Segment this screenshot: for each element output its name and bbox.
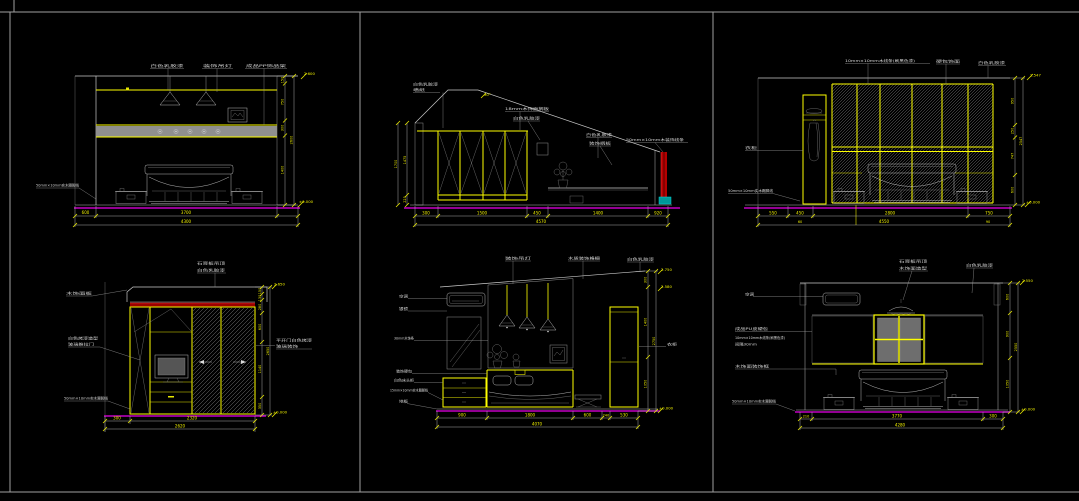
dim-text: 300 (281, 125, 285, 131)
level-mark: 2.550 (1022, 278, 1033, 283)
material-label: 10mm×10mm木线条(刷黑色漆) (845, 58, 915, 63)
dim-text: 4300 (181, 219, 192, 224)
material-label: 装饰吊灯 (505, 256, 532, 261)
material-label: 空调 (745, 292, 755, 297)
sloped-ceiling (440, 271, 645, 287)
material-label: 15mm×10mm实木踢脚线 (390, 388, 429, 393)
level-mark: 2.650 (274, 282, 285, 287)
dimension-right: 950 250 747 600 2547 2.547 ±0.000 (1010, 73, 1041, 208)
dimension-right: 300 1400 1050 2750 2.750 2.580 ±0.000 (638, 267, 674, 413)
material-label: 玻璃推拉门 (68, 342, 94, 347)
dim-text: 530 (620, 413, 628, 418)
material-label: 50mm×10mm实木踢脚线 (64, 396, 109, 401)
nightstand (231, 189, 263, 204)
dimension-left: 1475 225 1700 (394, 121, 409, 207)
elevation-panel-2: 1475 225 1700 300 1500 450 1400 920 4570… (394, 82, 688, 228)
material-label: 50mm×10mm实木踢脚线 (732, 399, 777, 404)
dim-text: 750 (281, 99, 285, 105)
dimension-bottom: 300 1500 450 1400 920 4570 (413, 206, 670, 227)
material-label: 石膏板吊顶 (197, 261, 226, 266)
level-mark: ±0.000 (273, 410, 288, 415)
bed (859, 370, 947, 409)
material-label: 衣柜 (667, 342, 678, 347)
dim-text: 250 (1011, 128, 1015, 134)
closet (803, 95, 826, 204)
level-mark: 2.547 (1030, 73, 1041, 78)
material-label: 白色乳胶漆 (978, 60, 1006, 65)
dim-text: 300 (644, 277, 648, 283)
level-mark: ±0.000 (299, 199, 314, 204)
dim-text: 4070 (532, 422, 543, 427)
dimension-right: 150 750 300 1400 2600 2.600 ±0.000 (277, 71, 315, 207)
material-label: 白色乳胶漆 (151, 63, 185, 68)
material-label: 硬包饰面 (936, 59, 961, 64)
dim-text: 2320 (187, 416, 198, 421)
red-band (130, 303, 255, 307)
dim-text: 1475 (403, 156, 407, 165)
callouts: 石膏板吊顶 木饰面造型 白色乳胶漆 空调 成品PU皮硬包 10mm×10mm木线… (732, 259, 994, 412)
elevation-panel-4: 300 2320 2620 150 130 280 600 1140 350 2… (64, 261, 313, 433)
bed-platform (487, 370, 573, 407)
dim-text: 350 (258, 403, 262, 409)
material-label: 白色乳胶漆 (966, 263, 994, 268)
yellow-marker (126, 88, 129, 91)
material-label: 衣柜 (745, 145, 758, 150)
wardrobe (438, 131, 527, 200)
dimension-right: 600 900 1050 2550 2.550 ±0.000 (1003, 278, 1036, 414)
dim-text: 1500 (477, 211, 488, 216)
dimension-bottom: 900 1800 600 240 530 4070 (435, 411, 640, 429)
dim-text: 600 (584, 413, 592, 418)
elevation-panel-3: 550 450 2800 750 60 4550 90 950 250 747 … (728, 58, 1041, 227)
dim-text: 2800 (885, 211, 896, 216)
material-label: 白色乳胶漆 (586, 132, 613, 137)
ceiling-lamp-icon (887, 299, 915, 314)
dim-text: 1400 (593, 211, 604, 216)
material-label: 白色乳胶漆 (197, 268, 226, 273)
dim-text: 210 (803, 415, 809, 419)
dim-text: 900 (458, 413, 466, 418)
teal-base-block (659, 197, 671, 204)
air-conditioner (823, 293, 860, 305)
dim-text: 600 (1006, 294, 1010, 300)
picture-frame (550, 345, 567, 363)
dim-text: 600 (82, 210, 90, 215)
dim-text: 4280 (895, 423, 906, 428)
dim-text: 2620 (175, 424, 186, 429)
material-label: 30mm木饰条 (394, 336, 415, 341)
material-label: 空调 (399, 294, 409, 299)
dim-text: 1400 (281, 166, 285, 175)
dim-text: 600 (1011, 187, 1015, 193)
dim-text: 300 (989, 414, 997, 419)
dim-text: 2550 (1014, 343, 1018, 352)
material-label: 玻璃装饰 (276, 344, 299, 349)
dim-text: 2600 (290, 136, 294, 145)
material-label: 银镜 (399, 306, 409, 311)
shelf-band (96, 126, 277, 137)
dim-text: 3700 (181, 210, 192, 215)
stool (575, 395, 601, 407)
hatched-pier (994, 284, 1000, 305)
dim-text: 150 (258, 288, 262, 294)
dim-text: 750 (985, 211, 993, 216)
material-label: 白色床头柜 (394, 378, 415, 383)
plants (487, 345, 520, 369)
dim-text: 60 (798, 220, 802, 224)
material-label: 装饰搁板 (589, 141, 612, 146)
dim-text: 300 (422, 211, 430, 216)
dim-text: 3770 (892, 414, 903, 419)
sliding-door (193, 308, 220, 413)
material-label: 石膏板吊顶 (899, 259, 928, 264)
dim-text: 1140 (258, 365, 262, 374)
pendant-lamp-icon (499, 283, 556, 332)
material-label: 白色乳胶漆 (627, 257, 655, 262)
nightstand (823, 395, 855, 410)
level-mark: ±0.000 (1021, 407, 1036, 412)
dim-text: 4570 (536, 219, 547, 224)
material-label: 间隔30mm (735, 342, 757, 347)
dim-text: 950 (1011, 98, 1015, 104)
dimension-bottom: 600 3700 4300 (73, 206, 300, 227)
material-label: 50mm×10mm实木踢脚线 (728, 188, 774, 193)
material-label: 地板 (399, 399, 409, 404)
dimension-bottom: 550 450 2800 750 60 4550 90 (756, 206, 1012, 227)
hatched-pier (415, 123, 423, 205)
material-label: 白色烤漆造型 (68, 336, 99, 341)
dim-text: 2750 (652, 337, 656, 346)
dim-text: 225 (403, 196, 407, 202)
dim-text: 1050 (644, 380, 648, 389)
sliding-door (222, 308, 254, 413)
air-conditioner (447, 293, 485, 306)
slope-label: 30° (484, 92, 491, 97)
tv (155, 355, 188, 382)
plant (554, 162, 572, 188)
hatched-block (537, 143, 548, 155)
feature-wall (832, 84, 993, 203)
picture-frame (228, 108, 247, 122)
dim-text: 920 (654, 211, 662, 216)
dim-text: 1800 (525, 413, 536, 418)
dim-text: 4550 (879, 219, 890, 224)
elevation-panel-6: 210 3770 300 4280 600 900 1050 2550 2.55… (732, 259, 1036, 431)
callouts: 白色乳胶漆 墙纸 30° 18mm木饰面搁板 白色乳胶漆 白色乳胶漆 装饰搁板 … (413, 82, 688, 166)
dim-text: 130 (258, 295, 262, 301)
material-label: 白色乳胶漆 (413, 82, 439, 87)
desk (548, 150, 655, 205)
dimension-right: 150 130 280 600 1140 350 2650 2.650 ±0.0… (255, 282, 288, 418)
dim-text: 550 (769, 211, 777, 216)
material-label: 白色乳胶漆 (513, 116, 541, 121)
cad-canvas: 600 3700 4300 150 750 300 1400 2600 2.60… (0, 0, 1079, 501)
dim-text: 1050 (1006, 380, 1010, 389)
dim-text: 2650 (266, 347, 270, 356)
dim-text: 240 (603, 414, 609, 418)
dim-text: 300 (113, 416, 121, 421)
dim-text: 280 (258, 304, 262, 310)
callouts: 装饰吊灯 木质装饰格栅 白色乳胶漆 空调 银镜 30mm木饰条 装饰硬包 白色床… (390, 256, 678, 410)
dim-text: 900 (1006, 331, 1010, 337)
dimension-bottom: 300 2320 2620 (103, 416, 257, 433)
level-mark: ±0.000 (659, 406, 674, 411)
nightstand (115, 189, 147, 204)
dim-text: 150 (281, 77, 285, 83)
elevation-panel-5: 900 1800 600 240 530 4070 300 1400 1050 … (390, 256, 678, 430)
material-label: 50mm×10mm木装饰线条 (626, 137, 685, 142)
material-label: 成品PP饰品架 (246, 63, 287, 68)
material-label: 18mm木饰面搁板 (505, 106, 550, 111)
dim-text: 2547 (1019, 137, 1023, 146)
material-label: 50mm×10mm实木踢脚线 (36, 183, 80, 188)
dim-text: 450 (533, 211, 541, 216)
dim-text: 1700 (394, 160, 398, 169)
material-label: 木饰面板 (66, 291, 93, 296)
material-label: 墙纸 (413, 87, 426, 92)
nightstand (947, 395, 979, 410)
dimension-bottom: 210 3770 300 4280 (798, 412, 1005, 430)
elevation-panel-1: 600 3700 4300 150 750 300 1400 2600 2.60… (36, 63, 315, 227)
padded-feature-wall (812, 315, 983, 364)
bed (145, 165, 233, 204)
dim-text: 450 (796, 211, 804, 216)
material-label: 木质装饰格栅 (568, 256, 601, 261)
level-mark: 2.750 (661, 267, 672, 272)
level-mark: 2.580 (661, 284, 672, 289)
material-label: 10mm×10mm木线条(刷黑色漆) (735, 335, 785, 340)
level-mark: 2.600 (304, 71, 315, 76)
dim-text: 747 (1011, 153, 1015, 159)
material-label: 成品PU皮硬包 (735, 326, 769, 331)
dim-text: 90 (986, 220, 990, 224)
material-label: 装饰吊灯 (203, 63, 234, 68)
mirror (447, 317, 481, 369)
cad-drawing: 600 3700 4300 150 750 300 1400 2600 2.60… (0, 0, 1079, 501)
dim-text: 600 (258, 324, 262, 330)
material-label: 木饰面造型 (899, 266, 928, 271)
level-mark: ±0.000 (1026, 200, 1041, 205)
material-label: 木饰面装饰框 (735, 364, 770, 369)
dim-text: 1400 (644, 318, 648, 327)
tall-cabinet (610, 307, 638, 407)
material-label: 平开门白色烤漆 (276, 338, 313, 343)
material-label: 装饰硬包 (396, 369, 413, 374)
dresser (443, 378, 486, 407)
